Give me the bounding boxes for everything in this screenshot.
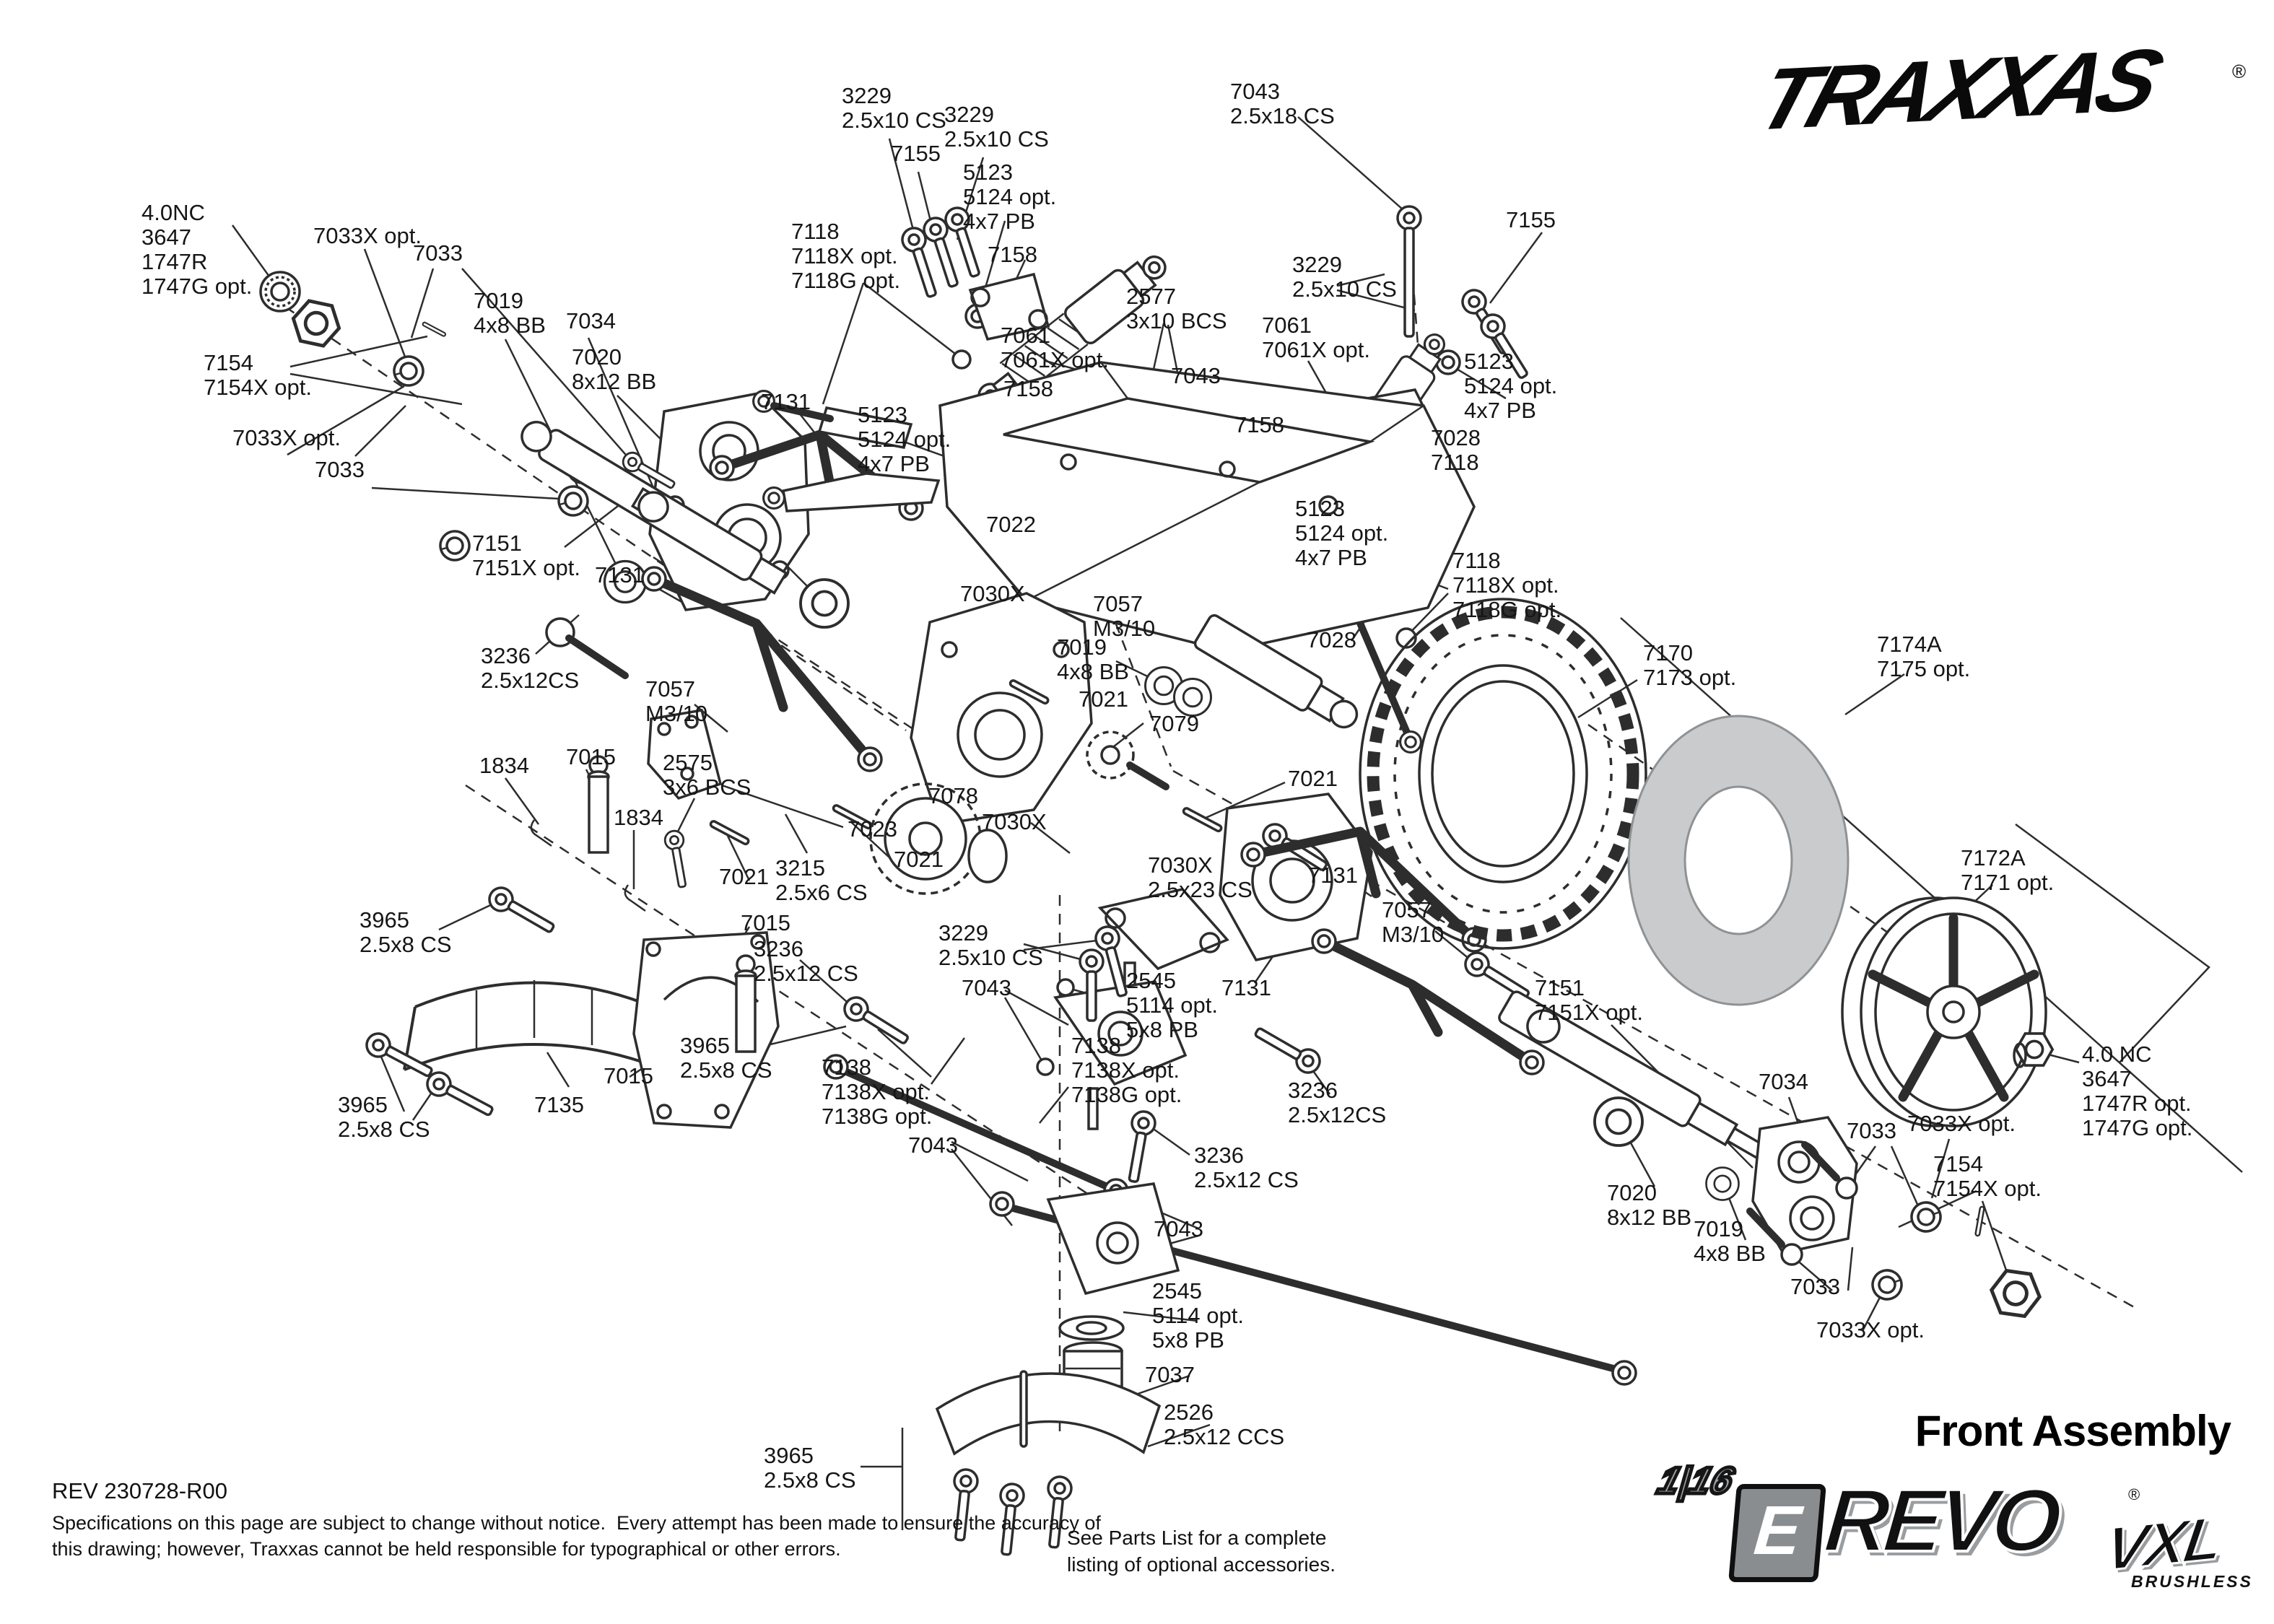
part-label: 7158	[988, 243, 1037, 267]
wheel-nut-left	[261, 272, 300, 311]
part-label: 3229 2.5x10 CS	[944, 102, 1049, 152]
pinion-gear	[1087, 732, 1166, 787]
part-label: 1834	[479, 754, 529, 778]
part-label: 7028	[1307, 628, 1356, 652]
part-label: 7015	[604, 1064, 653, 1088]
part-label: 7043	[1154, 1217, 1203, 1241]
part-label: 3965 2.5x8 CS	[338, 1093, 430, 1142]
part-label: 4.0NC 3647 1747R 1747G opt.	[141, 201, 252, 299]
part-label: 7033X opt.	[313, 224, 422, 248]
part-label: 7154 7154X opt.	[1933, 1152, 2042, 1201]
part-label: 7155	[1506, 208, 1556, 232]
erevo-logo-e: E	[1728, 1484, 1826, 1582]
tire	[1360, 599, 1646, 948]
part-label: 2545 5114 opt. 5x8 PB	[1152, 1279, 1244, 1353]
part-label: 2526 2.5x12 CCS	[1164, 1400, 1284, 1449]
disclaimer-text: Specifications on this page are subject …	[52, 1510, 1101, 1562]
part-label: 7170 7173 opt.	[1643, 641, 1736, 690]
part-label: 7033	[315, 458, 365, 482]
part-label: 7131	[1221, 976, 1271, 1000]
scale-badge: 1|16	[1652, 1459, 1738, 1503]
part-label: 7033	[413, 241, 463, 266]
part-label: 7118 7118X opt. 7118G opt.	[1452, 549, 1561, 622]
part-label: 7138 7138X opt. 7138G opt.	[822, 1055, 932, 1129]
parts-list-note: See Parts List for a complete listing of…	[1067, 1524, 1336, 1578]
erevo-logo-revo: REVO	[1821, 1470, 2060, 1572]
erevo-registered-mark: ®	[2128, 1485, 2140, 1504]
part-label: 3236 2.5x12CS	[1288, 1078, 1386, 1127]
part-label: 7043 2.5x18 CS	[1230, 79, 1335, 128]
part-label: 7131	[761, 390, 811, 414]
part-label: 7034	[1759, 1070, 1808, 1094]
part-label: 7033	[1790, 1275, 1840, 1299]
part-label: 7037	[1145, 1363, 1195, 1387]
part-label: 7021	[1288, 767, 1338, 791]
part-label: 7174A 7175 opt.	[1877, 632, 1970, 681]
part-label: 7020 8x12 BB	[1607, 1181, 1691, 1230]
part-label: 7158	[1003, 377, 1053, 401]
part-label: 7033	[1847, 1119, 1896, 1143]
part-label: 7019 4x8 BB	[1057, 635, 1129, 684]
part-label: 7158	[1234, 413, 1284, 437]
part-label: 7057 M3/10	[1093, 592, 1155, 641]
part-label: 7028 7118	[1431, 426, 1481, 475]
hex-hub-right	[1989, 1269, 2043, 1318]
part-label: 3965 2.5x8 CS	[764, 1444, 856, 1493]
part-label: 7034	[566, 309, 616, 333]
part-label: 3236 2.5x12CS	[481, 644, 579, 693]
part-label: 7079	[1149, 712, 1199, 736]
part-label: 7043	[1171, 364, 1221, 388]
part-label: 7043	[908, 1133, 958, 1158]
foam-insert	[1629, 716, 1848, 1005]
registered-mark: ®	[2232, 61, 2246, 83]
part-label: 7131	[595, 563, 645, 588]
revision-text: REV 230728-R00	[52, 1478, 227, 1504]
part-label: 3965 2.5x8 CS	[680, 1034, 772, 1083]
part-label: 7155	[891, 141, 941, 166]
page: 4.0NC 3647 1747R 1747G opt.7033X opt.703…	[0, 0, 2274, 1624]
part-label: 7043	[962, 976, 1011, 1000]
part-label: 7015	[741, 911, 790, 935]
part-label: 7030X	[982, 810, 1047, 834]
part-label: 7061 7061X opt.	[1001, 323, 1109, 372]
part-label: 7033X opt.	[1816, 1318, 1925, 1343]
part-label: 7020 8x12 BB	[572, 345, 656, 394]
part-label: 5123 5124 opt. 4x7 PB	[858, 403, 951, 476]
part-label: 7021	[719, 865, 769, 889]
part-label: 7118 7118X opt. 7118G opt.	[791, 219, 900, 293]
part-label: 5123 5124 opt. 4x7 PB	[1464, 349, 1557, 423]
part-label: 3229 2.5x10 CS	[1292, 253, 1397, 302]
part-label: 7019 4x8 BB	[474, 289, 546, 338]
skid-plate	[937, 1374, 1159, 1454]
part-label: 5123 5124 opt. 4x7 PB	[963, 160, 1056, 234]
part-label: 7023	[848, 817, 897, 842]
part-label: 7061 7061X opt.	[1262, 313, 1370, 362]
part-label: 7057 M3/10	[1382, 898, 1444, 947]
part-label: 4.0 NC 3647 1747R opt. 1747G opt.	[2082, 1042, 2192, 1140]
part-label: 7015	[566, 745, 616, 769]
part-label: 7151 7151X opt.	[1535, 976, 1643, 1025]
page-title: Front Assembly	[1682, 1406, 2231, 1456]
part-label: 7078	[928, 784, 978, 808]
lower-arm-right	[1324, 941, 1532, 1062]
part-label: 3229 2.5x10 CS	[842, 84, 946, 133]
part-label: 2577 3x10 BCS	[1126, 284, 1227, 333]
part-label: 7033X opt.	[232, 426, 341, 450]
part-label: 3229 2.5x10 CS	[938, 921, 1043, 970]
part-label: 7135	[534, 1093, 584, 1117]
part-label: 7022	[986, 512, 1036, 537]
part-label: 7131	[1308, 863, 1358, 888]
part-label: 7030X	[960, 582, 1025, 606]
part-label: 2575 3x6 BCS	[663, 751, 751, 800]
bumper	[404, 980, 664, 1070]
part-label: 7033X opt.	[1907, 1112, 2016, 1136]
part-label: 7030X 2.5x23 CS	[1148, 853, 1253, 902]
part-label: 2545 5114 opt. 5x8 PB	[1126, 969, 1218, 1042]
part-label: 5123 5124 opt. 4x7 PB	[1295, 497, 1388, 570]
part-label: 7151 7151X opt.	[472, 531, 580, 580]
part-label: 7172A 7171 opt.	[1961, 846, 2054, 895]
part-label: 3236 2.5x12 CS	[1194, 1143, 1299, 1192]
part-label: 7154 7154X opt.	[204, 351, 312, 400]
part-label: 7021	[894, 847, 944, 872]
part-label: 3965 2.5x8 CS	[360, 908, 452, 957]
part-label: 7138 7138X opt. 7138G opt.	[1071, 1034, 1182, 1107]
part-label: 7021	[1079, 687, 1128, 712]
part-label: 7019 4x8 BB	[1694, 1217, 1766, 1266]
part-label: 1834	[614, 806, 663, 830]
part-label: 3236 2.5x12 CS	[754, 937, 858, 986]
part-label: 3215 2.5x6 CS	[775, 856, 868, 905]
wheel-rim	[1842, 898, 2046, 1126]
brushless-label: BRUSHLESS	[2131, 1572, 2253, 1592]
part-label: 7057 M3/10	[645, 677, 707, 726]
